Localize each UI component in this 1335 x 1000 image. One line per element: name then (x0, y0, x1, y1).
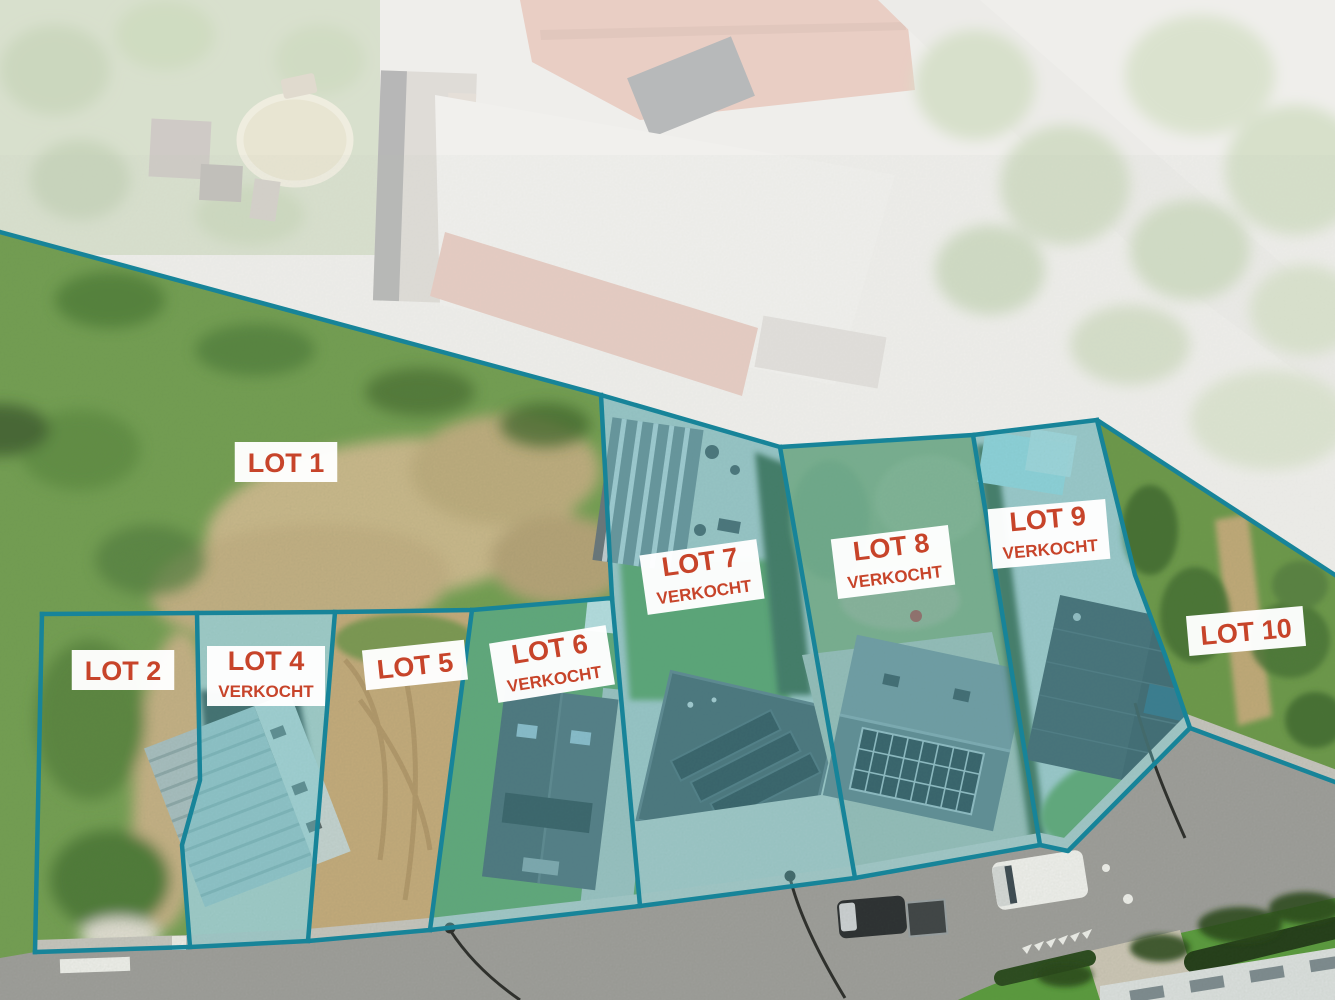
lot-1-name: LOT 1 (248, 448, 325, 478)
lot-1-label: LOT 1 (235, 442, 338, 482)
lot-9-label: LOT 9VERKOCHT (988, 499, 1111, 569)
lot-4-name: LOT 4 (228, 646, 305, 676)
aerial-lot-map: LOT 1LOT 2LOT 4VERKOCHTLOT 5LOT 6VERKOCH… (0, 0, 1335, 1000)
lot-4-status: VERKOCHT (218, 682, 314, 701)
lot-2-label: LOT 2 (72, 650, 175, 690)
lot-4-label: LOT 4VERKOCHT (207, 646, 325, 706)
lot-2-name: LOT 2 (85, 656, 162, 686)
